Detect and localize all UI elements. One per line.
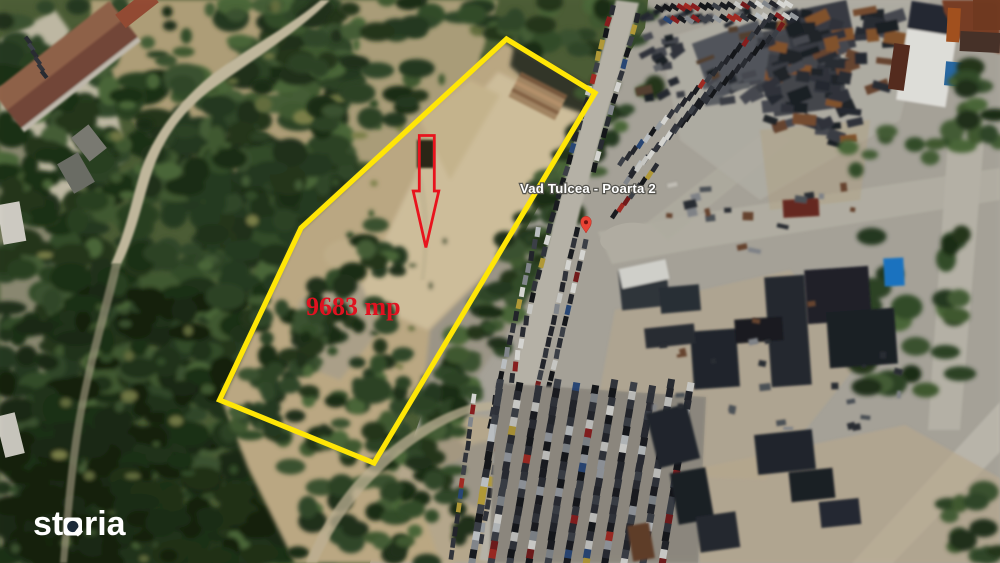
- svg-text:Vad Tulcea - Poarta 2: Vad Tulcea - Poarta 2: [520, 181, 656, 196]
- svg-text:st: st: [33, 505, 63, 543]
- svg-text:ria: ria: [84, 505, 127, 543]
- svg-text:9683 mp: 9683 mp: [306, 292, 401, 321]
